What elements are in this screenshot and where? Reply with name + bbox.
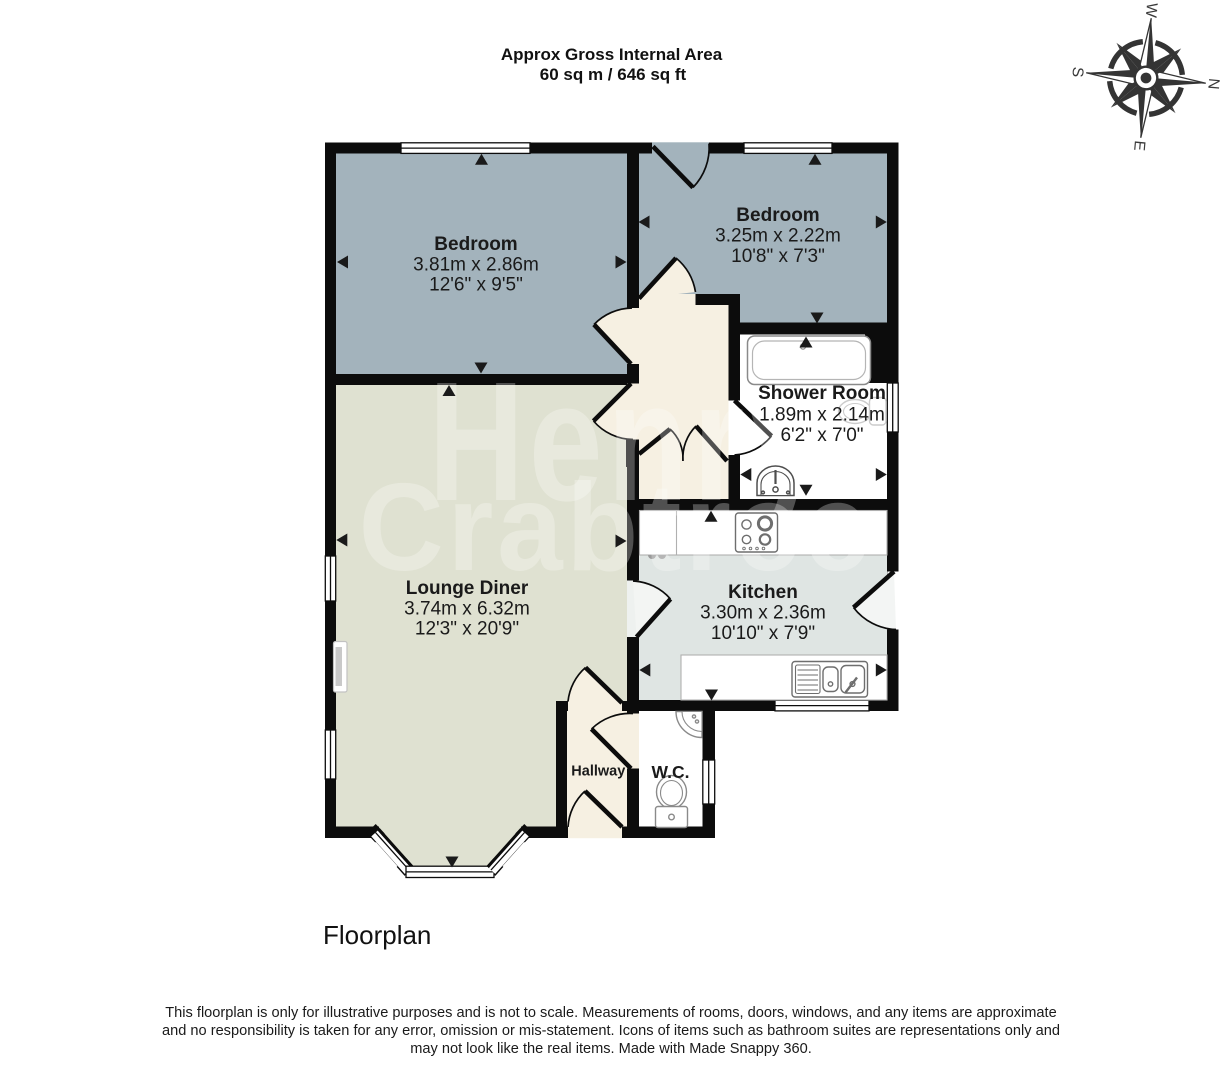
svg-text:Floorplan: Floorplan [323,920,431,950]
svg-text:10'10" x 7'9": 10'10" x 7'9" [711,623,815,644]
svg-text:W.C.: W.C. [652,762,690,782]
svg-text:12'6" x 9'5": 12'6" x 9'5" [429,274,523,295]
svg-text:N: N [1204,78,1222,91]
svg-text:Bedroom: Bedroom [736,205,819,226]
svg-text:Shower Room: Shower Room [758,383,886,404]
svg-text:S: S [1068,66,1086,78]
svg-text:Kitchen: Kitchen [728,582,798,603]
svg-text:3.81m x 2.86m: 3.81m x 2.86m [413,254,539,275]
svg-text:3.30m x 2.36m: 3.30m x 2.36m [700,603,826,624]
svg-text:Crabtree: Crabtree [359,458,874,596]
svg-text:Lounge Diner: Lounge Diner [406,578,529,599]
svg-text:3.25m x 2.22m: 3.25m x 2.22m [715,226,841,247]
svg-text:E: E [1130,140,1148,152]
svg-text:may not look like the real ite: may not look like the real items. Made w… [410,1041,812,1057]
svg-text:10'8" x 7'3": 10'8" x 7'3" [731,246,825,267]
svg-text:W: W [1142,2,1160,18]
svg-text:Hallway: Hallway [571,764,625,780]
svg-text:This floorplan is only for ill: This floorplan is only for illustrative … [165,1005,1056,1021]
svg-text:3.74m x 6.32m: 3.74m x 6.32m [404,599,530,620]
svg-text:Approx Gross Internal Area: Approx Gross Internal Area [501,45,723,64]
svg-text:6'2" x 7'0": 6'2" x 7'0" [780,425,863,446]
svg-text:1.89m x 2.14m: 1.89m x 2.14m [759,405,885,426]
svg-text:and no responsibility is taken: and no responsibility is taken for any e… [162,1023,1060,1039]
svg-text:12'3" x 20'9": 12'3" x 20'9" [415,619,519,640]
svg-text:Bedroom: Bedroom [434,234,517,255]
svg-text:60 sq m / 646 sq ft: 60 sq m / 646 sq ft [540,65,687,84]
